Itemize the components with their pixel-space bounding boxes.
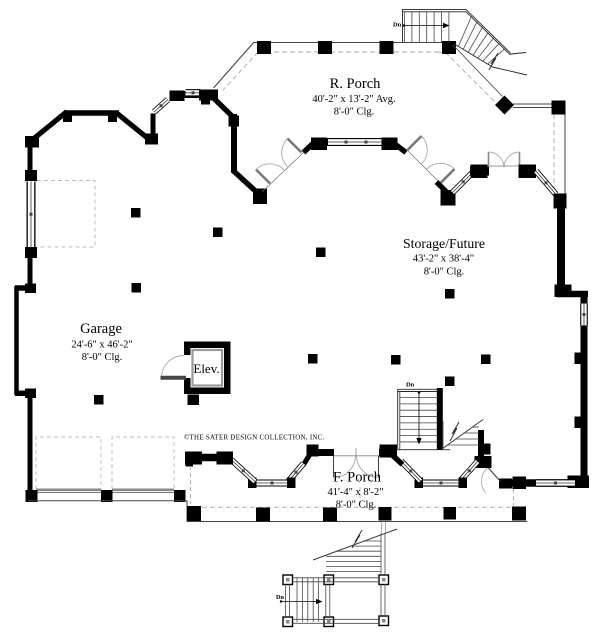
svg-text:Dn: Dn — [276, 594, 284, 601]
svg-text:R. Porch: R. Porch — [330, 76, 382, 92]
svg-text:©THE SATER DESIGN COLLECTION,: ©THE SATER DESIGN COLLECTION, INC. — [184, 435, 325, 442]
svg-text:8'-0" Clg.: 8'-0" Clg. — [334, 107, 375, 118]
svg-text:41'-4" x 8'-2": 41'-4" x 8'-2" — [327, 487, 383, 498]
svg-text:8'-0" Clg.: 8'-0" Clg. — [82, 352, 123, 363]
svg-text:Dn: Dn — [393, 22, 402, 29]
svg-text:Storage/Future: Storage/Future — [403, 236, 485, 251]
svg-text:8'-0" Clg.: 8'-0" Clg. — [424, 267, 465, 278]
svg-text:Dn: Dn — [406, 382, 415, 389]
svg-text:Garage: Garage — [80, 321, 122, 337]
svg-text:F. Porch: F. Porch — [333, 470, 382, 486]
svg-text:43'-2" x 38'-4": 43'-2" x 38'-4" — [413, 254, 474, 265]
svg-text:8'-0" Clg.: 8'-0" Clg. — [336, 500, 377, 511]
svg-text:24'-6" x 46'-2": 24'-6" x 46'-2" — [71, 340, 132, 351]
svg-text:Elev.: Elev. — [193, 361, 219, 376]
svg-text:40'-2" x 13'-2" Avg.: 40'-2" x 13'-2" Avg. — [312, 94, 395, 105]
